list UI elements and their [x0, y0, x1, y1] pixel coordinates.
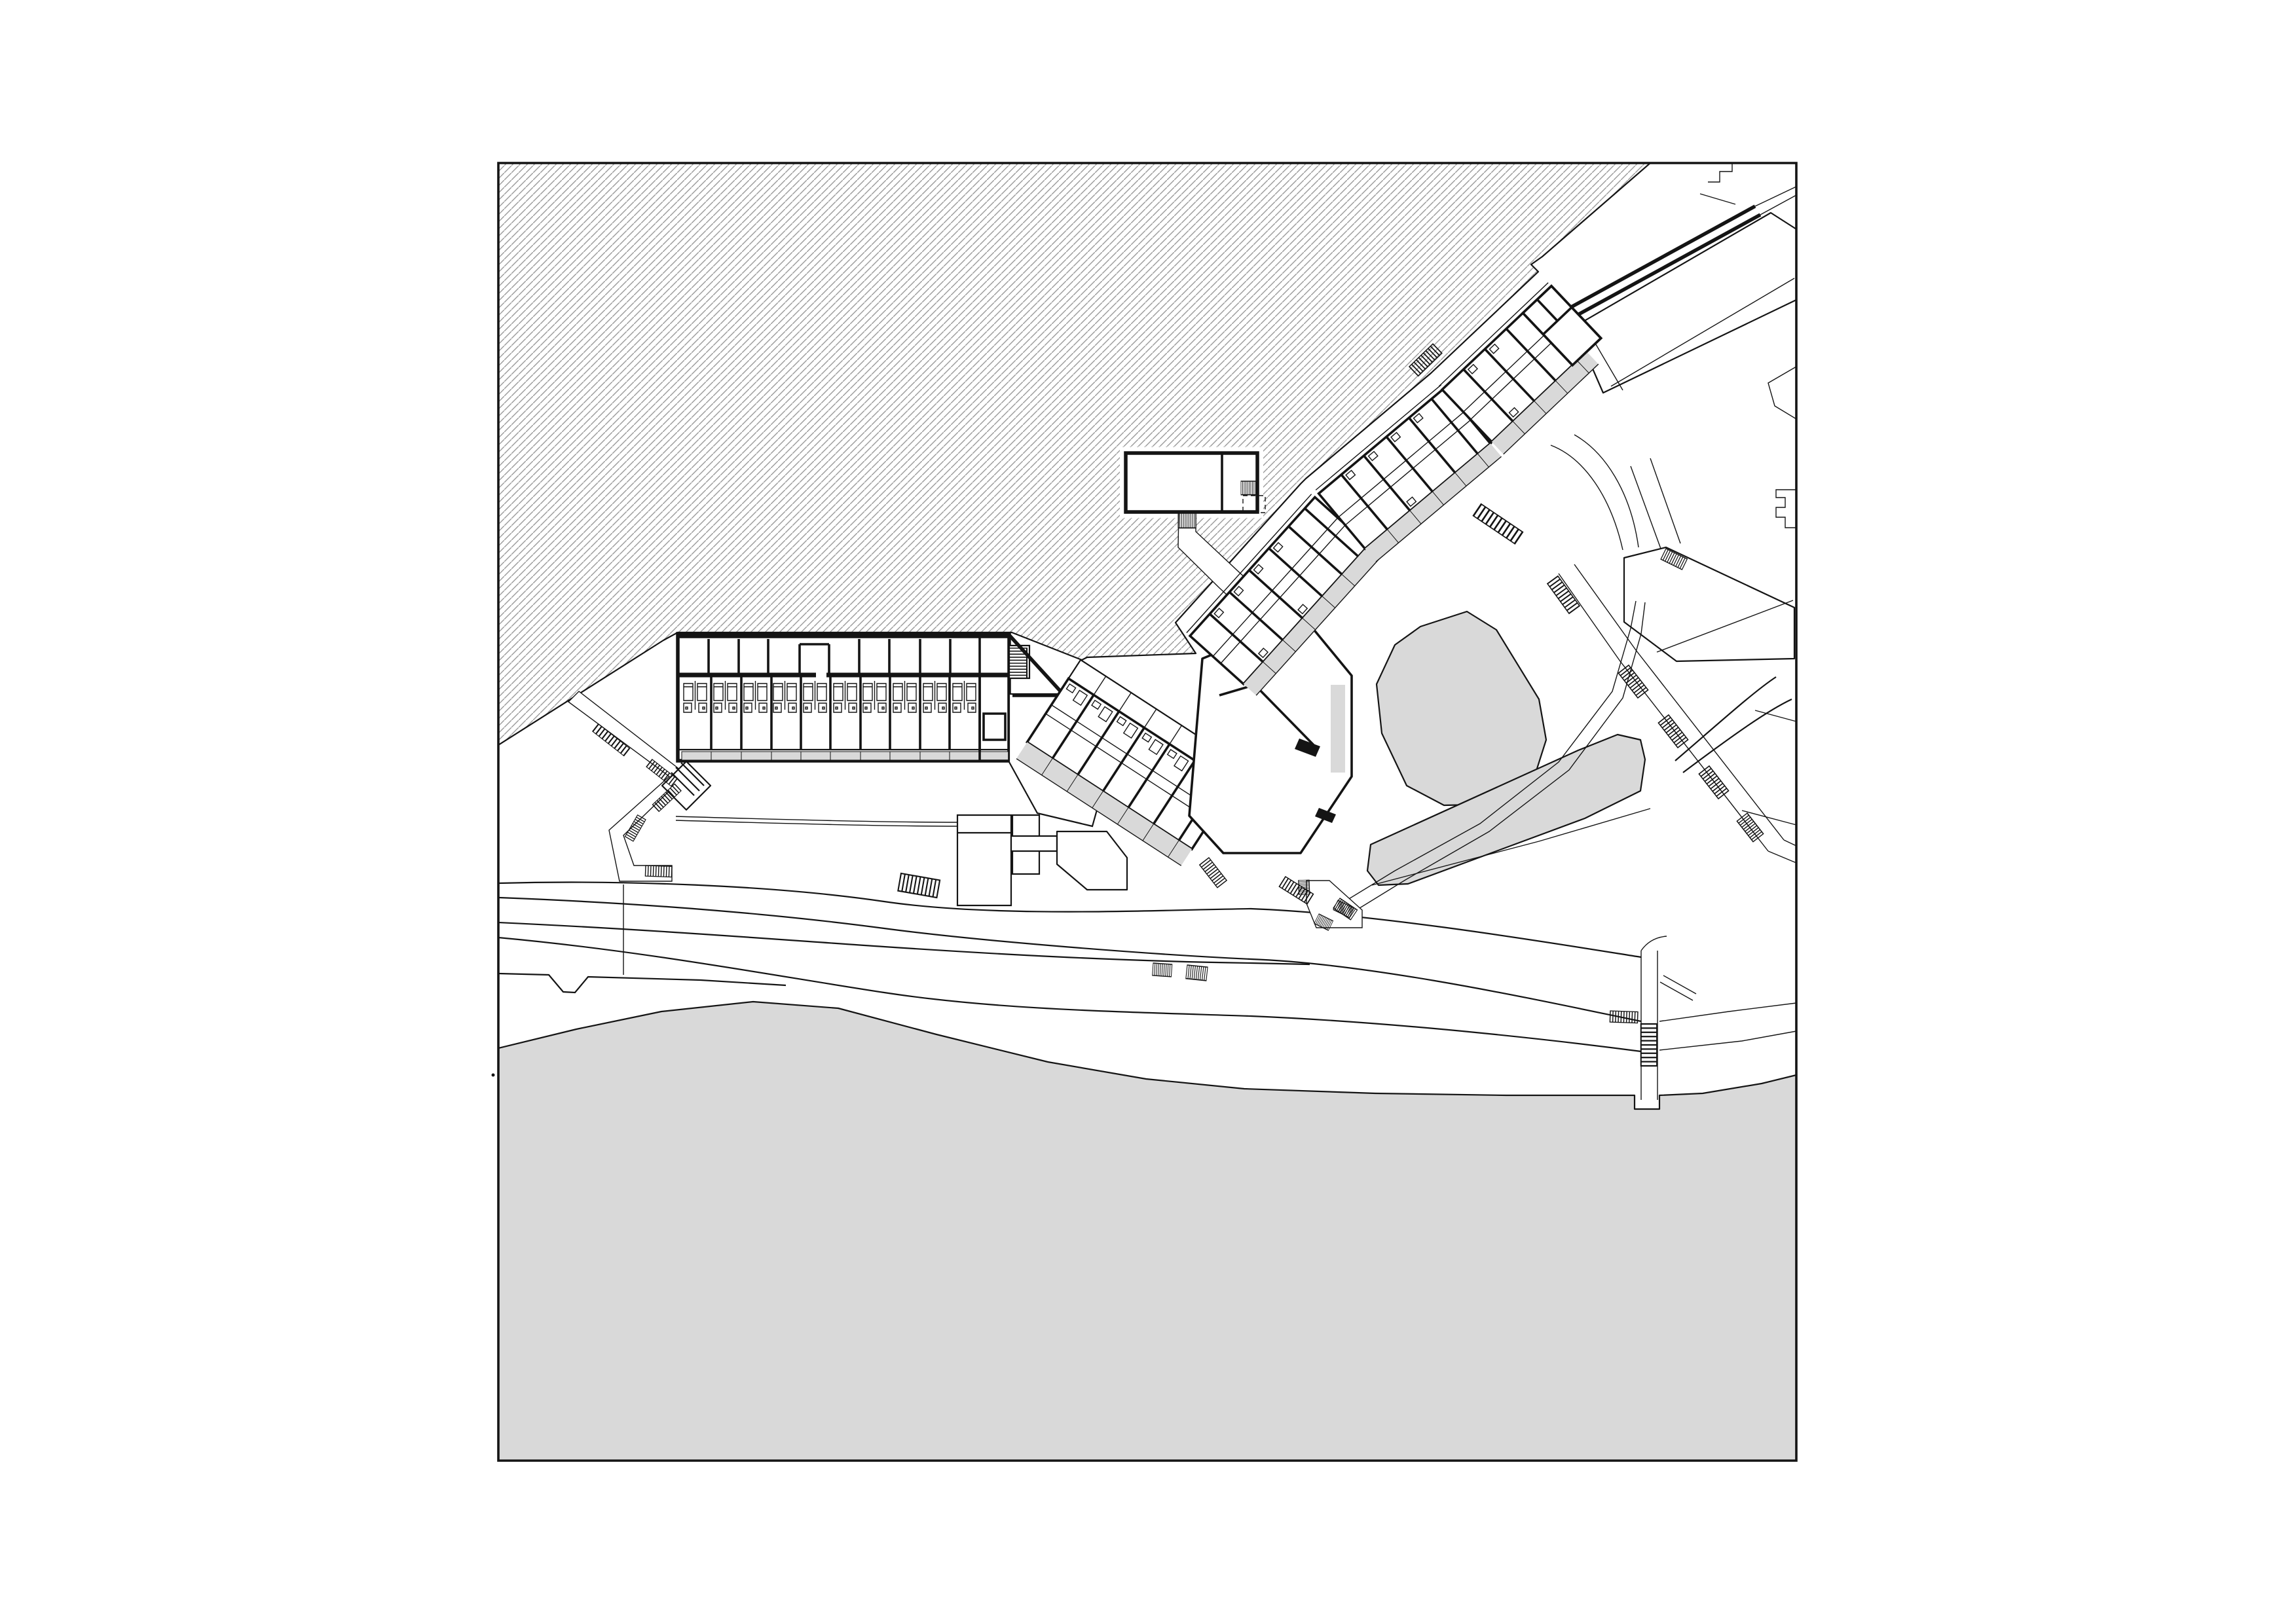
loop-road-a [1675, 677, 1776, 761]
promenade-stair-1 [1153, 963, 1172, 977]
annex-outline [1126, 453, 1257, 512]
annex-block-c [1057, 831, 1127, 890]
retaining-wall-a [1565, 206, 1755, 310]
stepped-path-end-b [1784, 840, 1796, 846]
slab-terrace-strip [682, 752, 1009, 760]
promenade-access-stair [898, 873, 940, 898]
road-line-2 [498, 898, 1641, 1021]
ramp-link-a [1660, 982, 1693, 1000]
terrace-pavilion-inner [1657, 600, 1793, 652]
y-walkway-b [1574, 435, 1639, 547]
loop-road-b [1683, 699, 1792, 773]
road-line-5 [498, 974, 786, 993]
beach-ramp-main-stair [1641, 1024, 1657, 1066]
west-room-slab [678, 634, 1064, 786]
walkway-platform [1306, 881, 1362, 928]
east-stepped-path-stair-1 [1547, 576, 1580, 613]
east-stepped-path-stair-2 [1618, 665, 1648, 698]
beach-ramp [1641, 936, 1696, 1100]
terrace-pavilion-outline [1624, 547, 1794, 661]
margin-dot [492, 1074, 495, 1077]
retaining-wall-ext-a [1755, 187, 1796, 206]
y-walkway-d [1650, 458, 1680, 543]
site-plan-drawing [0, 0, 2296, 1623]
y-walkway-c [1631, 466, 1661, 549]
retaining-wall-b [1570, 215, 1760, 319]
east-stepped-path-stair-5 [1737, 813, 1763, 842]
border-notch [1768, 367, 1796, 419]
east-stepped-path-stair-4 [1699, 766, 1728, 799]
beach-ramp-side-stair [1610, 1011, 1638, 1023]
upper-building-outline [1574, 213, 1796, 393]
service-road-upper-b [676, 820, 957, 826]
road-right-b [1659, 1031, 1796, 1050]
road-line-3 [498, 922, 1310, 964]
road-line-1 [498, 883, 1641, 957]
retaining-wall-ext-b [1760, 195, 1796, 215]
east-stepped-path-stair-3 [1658, 715, 1688, 748]
sea-water-area [498, 1002, 1796, 1461]
terrace-zigzag-steps [1776, 490, 1796, 528]
promenade-stair-2 [1186, 965, 1208, 981]
page [0, 0, 2296, 1623]
arm-garden-stair [1473, 504, 1523, 543]
corner-steps-outline [1708, 163, 1732, 182]
upper-building-inner [1587, 278, 1794, 390]
ramp-link-b [1663, 976, 1696, 994]
corner-tick [1700, 194, 1735, 204]
lower-annex-blocks [957, 815, 1127, 905]
stepped-path-end-a [1768, 851, 1796, 863]
road-right-a [1659, 1003, 1796, 1021]
ramp-top-curve [1641, 936, 1667, 951]
annex-block-bar [1011, 836, 1057, 851]
y-walkway-a [1551, 445, 1623, 550]
hall-stair-1 [1200, 858, 1227, 888]
annex-block-a [957, 815, 1011, 905]
